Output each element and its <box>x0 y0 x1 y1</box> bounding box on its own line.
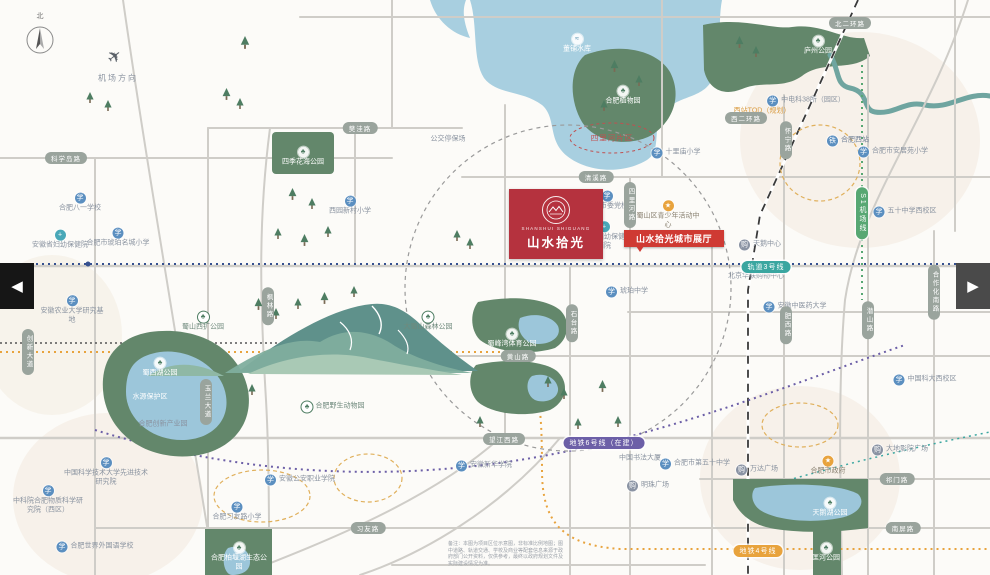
school-icon: 学 <box>652 148 663 159</box>
map-label-text: 中国书法大厦 <box>619 455 661 464</box>
mall-icon: 购 <box>627 481 638 492</box>
school-icon: 学 <box>113 228 124 239</box>
map-label: ♣大蜀山森林公园 <box>404 312 453 333</box>
map-label: 水源保护区 <box>133 394 168 403</box>
road-label: 四里河路 <box>624 182 636 228</box>
map-label: 学中国科学技术大学先进技术研究院 <box>64 457 148 487</box>
road-label: 玉兰大道 <box>200 379 212 425</box>
map-label-text: 中电科38所（园区） <box>781 97 845 106</box>
map-label: 学中电科38所（园区） <box>767 96 845 107</box>
map-label: ♣天鹅湖公园 <box>813 498 848 519</box>
airport-direction-label: 机场方向 <box>98 73 138 84</box>
map-label-text: 大蜀山森林公园 <box>404 324 453 333</box>
map-disclaimer: 备注：本图为项目区位示意图，非标准比例地图；图中道路、轨道交通、学校及商业等配套… <box>448 541 566 567</box>
mall-icon: 购 <box>736 465 747 476</box>
map-label: 购大地影院广场 <box>872 445 928 456</box>
school-icon: 学 <box>456 461 467 472</box>
map-label-text: 董铺水库 <box>563 46 591 55</box>
map-label: 学安徽中医药大学 <box>764 302 827 313</box>
road-label: 北二环路 <box>829 17 871 29</box>
road-label: 南屏路 <box>886 522 921 534</box>
parkwhite-icon: ♣ <box>507 329 518 340</box>
road-label: 西二环路 <box>725 112 767 124</box>
map-label-text: 天鹅中心 <box>753 241 781 250</box>
school-icon: 学 <box>265 475 276 486</box>
map-label-text: 蜀山区青少年活动中心 <box>636 212 700 230</box>
school-icon: 学 <box>602 191 613 202</box>
road-label: 合作化南路 <box>928 265 940 320</box>
map-label: 学十里庙小学 <box>652 148 701 159</box>
hospital-icon: + <box>55 230 66 241</box>
map-label-text: 西园新村小学 <box>329 208 371 217</box>
water-icon: ≈ <box>572 34 583 45</box>
metro-line-label: 地铁4号线 <box>734 545 783 557</box>
map-label-text: 公交停保场 <box>431 136 466 145</box>
parkwhite-icon: ♣ <box>618 86 629 97</box>
road-label: 黄山路 <box>501 350 536 362</box>
map-label: 购明珠广场 <box>627 481 669 492</box>
school-icon: 学 <box>660 459 671 470</box>
school-icon: 学 <box>75 193 86 204</box>
school-icon: 学 <box>874 207 885 218</box>
map-label-text: 蜀峰湾体育公园 <box>488 341 537 350</box>
map-label-text: 合肥西站 <box>841 137 869 146</box>
school-icon: 学 <box>101 457 112 468</box>
map-label: 学安徽农业大学研究基地 <box>39 295 105 325</box>
parkwhite-icon: ♣ <box>813 36 824 47</box>
road-label: 清溪路 <box>579 171 614 183</box>
map-label-text: 天鹅湖公园 <box>813 510 848 519</box>
map-label-text: 合肥习友路小学 <box>213 514 262 523</box>
road-label: 习友路 <box>351 522 386 534</box>
metro-line-label: 地铁6号线（在建） <box>564 437 645 449</box>
school-icon: 学 <box>894 375 905 386</box>
map-label: 学合肥市安居苑小学 <box>858 147 928 158</box>
school-icon: 学 <box>232 502 243 513</box>
map-label-text: 安徽新华学院 <box>470 462 512 471</box>
map-label-text: 蜀西湖公园 <box>143 370 178 379</box>
map-label: ♣合肥植物园 <box>606 86 641 107</box>
map-label: ≈董铺水库 <box>563 34 591 55</box>
park-icon: ♣ <box>198 312 209 323</box>
gov-icon: ★ <box>823 456 834 467</box>
map-label-text: 中国科学技术大学先进技术研究院 <box>64 469 148 487</box>
compass-icon <box>27 27 53 53</box>
map-label: 公交停保场 <box>431 136 466 145</box>
map-label: 学中国科大西校区 <box>894 375 957 386</box>
map-label-text: 北京华联购物中心 <box>728 273 784 282</box>
road-label: 石台路 <box>566 304 578 342</box>
map-label-text: 庐州公园 <box>804 48 832 57</box>
map-label: ♣庐州公园 <box>804 36 832 57</box>
map-label-text: 合肥创新产业园 <box>139 421 188 430</box>
map-label: ♣蜀西湖公园 <box>143 358 178 379</box>
map-label-text: 四季花海公园 <box>282 159 324 168</box>
map-label: 铁合肥西站 <box>827 136 869 147</box>
map-label-text: 合肥八一学校 <box>59 205 101 214</box>
metro-line-label: 轨道3号线 <box>742 261 791 273</box>
map-label-text: 安徽农业大学研究基地 <box>39 307 105 325</box>
map-label: 学合肥世界外国语学校 <box>57 542 134 553</box>
road-label: 潜山路 <box>862 301 874 339</box>
map-label-text: 合肥市安居苑小学 <box>872 148 928 157</box>
road-label: 科学岛路 <box>45 152 87 164</box>
map-label: 学合肥八一学校 <box>59 193 101 214</box>
map-label-text: 安徽公安职业学院 <box>279 476 335 485</box>
parkwhite-icon: ♣ <box>821 543 832 554</box>
map-label: 学合肥市琥珀名城小学 <box>87 228 150 249</box>
map-label-text: 合肥市琥珀名城小学 <box>87 240 150 249</box>
park-icon: ♣ <box>423 312 434 323</box>
map-label-text: 中国科大西校区 <box>908 376 957 385</box>
project-latin-name: SHANSHUI SHIGUANG <box>522 226 591 231</box>
school-icon: 学 <box>43 485 54 496</box>
map-label: 学五十中学西校区 <box>874 207 937 218</box>
map-label: 学合肥市第五十中学 <box>660 459 730 470</box>
map-label-text: 明珠广场 <box>641 482 669 491</box>
school-icon: 学 <box>858 147 869 158</box>
map-label: ♣匡河公园 <box>811 543 841 564</box>
exhibition-hall-callout: 山水拾光城市展厅 <box>624 230 724 247</box>
road-label: 樊洼路 <box>343 122 378 134</box>
map-label: ♣合肥野生动物园 <box>302 402 365 413</box>
mall-icon: 购 <box>872 445 883 456</box>
map-label-text: 安徽省妇幼保健院 <box>32 242 88 251</box>
map-label: ♣蜀山西扩公园 <box>182 312 224 333</box>
map-label: 学安徽新华学院 <box>456 461 512 472</box>
school-icon: 学 <box>606 287 617 298</box>
road-label: 创新大道 <box>22 329 34 375</box>
train-icon: 铁 <box>827 136 838 147</box>
road-label: 枫林路 <box>262 287 274 325</box>
project-logo-card: SHANSHUI SHIGUANG 山水拾光 <box>509 189 603 259</box>
map-label: 学西园新村小学 <box>329 196 371 217</box>
map-label-text: 匡河公园 <box>812 555 840 564</box>
map-label: 学合肥习友路小学 <box>213 502 262 523</box>
map-label-text: 蜀山西扩公园 <box>182 324 224 333</box>
map-label: ★合肥市政府 <box>811 456 846 477</box>
road-label: 怀宁路 <box>780 121 792 159</box>
school-icon: 学 <box>57 542 68 553</box>
map-label-text: 十里庙小学 <box>666 149 701 158</box>
map-label: 学中科院合肥物质科学研究院（西区） <box>11 485 85 515</box>
map-label-text: 合肥世界外国语学校 <box>71 543 134 552</box>
parkwhite-icon: ♣ <box>298 147 309 158</box>
map-label-text: 合肥植物园 <box>606 98 641 107</box>
map-label: ♣合肥柏堰湖生态公园 <box>211 542 267 572</box>
carousel-prev-button[interactable]: ◀ <box>0 263 34 309</box>
map-label-text: 水源保护区 <box>133 394 168 403</box>
school-icon: 学 <box>67 295 78 306</box>
map-label-text: 五十中学西校区 <box>888 208 937 217</box>
map-label-text: 琥珀中学 <box>620 288 648 297</box>
map-label-text: 合肥野生动物园 <box>316 403 365 412</box>
map-label: +安徽省妇幼保健院 <box>32 230 88 251</box>
map-label-text: 万达广场 <box>750 466 778 475</box>
mall-icon: 购 <box>739 240 750 251</box>
road-label: 祁门路 <box>880 473 915 485</box>
parkwhite-icon: ♣ <box>234 542 245 553</box>
map-label-text: 合肥柏堰湖生态公园 <box>211 554 267 572</box>
school-icon: 学 <box>345 196 356 207</box>
map-label-text: 大地影院广场 <box>886 446 928 455</box>
map-label: ★蜀山区青少年活动中心 <box>636 200 700 230</box>
map-label: ♣四季花海公园 <box>282 147 324 168</box>
gov-icon: ★ <box>663 200 674 211</box>
compass-north-label: 北 <box>37 11 44 21</box>
map-base <box>0 0 990 575</box>
map-label-text: 中科院合肥物质科学研究院（西区） <box>11 497 85 515</box>
parkwhite-icon: ♣ <box>155 358 166 369</box>
map-label: 购万达广场 <box>736 465 778 476</box>
carousel-next-button[interactable]: ▶ <box>956 263 990 309</box>
project-logo-icon <box>542 196 570 224</box>
map-label: 合肥创新产业园 <box>139 421 188 430</box>
road-label: 望江西路 <box>483 433 525 445</box>
map-label: 学安徽公安职业学院 <box>265 475 335 486</box>
map-label: 北京华联购物中心 <box>728 273 784 282</box>
road-label: 肥西路 <box>780 306 792 344</box>
radius-circle <box>405 125 731 451</box>
school-icon: 学 <box>767 96 778 107</box>
map-label-text: 合肥市政府 <box>811 468 846 477</box>
map-label: 购天鹅中心 <box>739 240 781 251</box>
map-label: 中国书法大厦 <box>619 455 661 464</box>
map-label: 学琥珀中学 <box>606 287 648 298</box>
school-icon: 学 <box>764 302 775 313</box>
map-label-text: 合肥市第五十中学 <box>674 460 730 469</box>
parkwhite-icon: ♣ <box>825 498 836 509</box>
location-map: 北 ✈ 机场方向 ≈董铺水库♣合肥植物园♣庐州公园♣四季花海公园铁合肥西站学中电… <box>0 0 990 575</box>
project-name: 山水拾光 <box>527 232 585 251</box>
metro-line-label: S1机场线 <box>856 187 868 239</box>
map-label: ♣蜀峰湾体育公园 <box>488 329 537 350</box>
park-icon: ♣ <box>302 402 313 413</box>
silihe-area-badge: 四里河片区 <box>591 133 634 144</box>
